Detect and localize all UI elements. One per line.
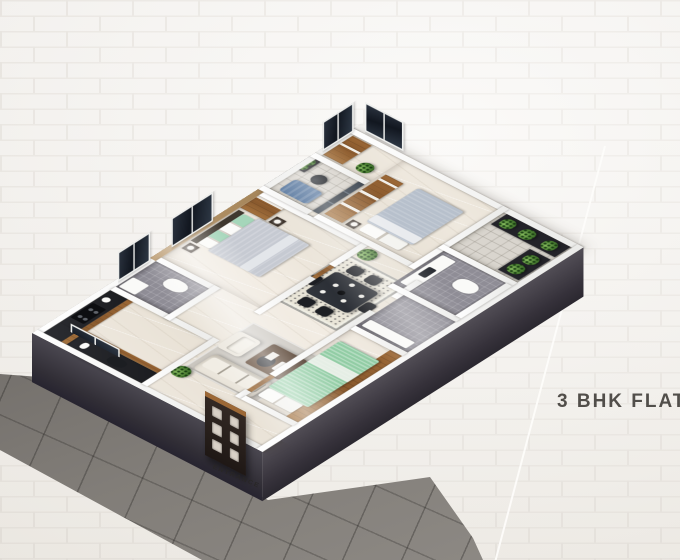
plant (167, 363, 195, 379)
door-slot (229, 415, 238, 430)
wall (241, 396, 298, 426)
door-glass-slots (212, 406, 239, 463)
tv-panel (252, 401, 286, 419)
door-slot (212, 406, 221, 421)
door-slot (212, 422, 221, 437)
door-slot (212, 438, 221, 453)
door-slot (229, 431, 238, 446)
coffee-table (244, 344, 308, 380)
wall (235, 389, 252, 399)
plan-title: 3 BHK FLAT (557, 391, 680, 413)
armchair (216, 331, 262, 358)
bed-pillows (257, 388, 303, 413)
wall (141, 337, 219, 386)
door-sill (247, 375, 276, 393)
door-slot (229, 447, 238, 462)
scene: ENTRANCE 3 BHK FLAT (0, 0, 680, 560)
